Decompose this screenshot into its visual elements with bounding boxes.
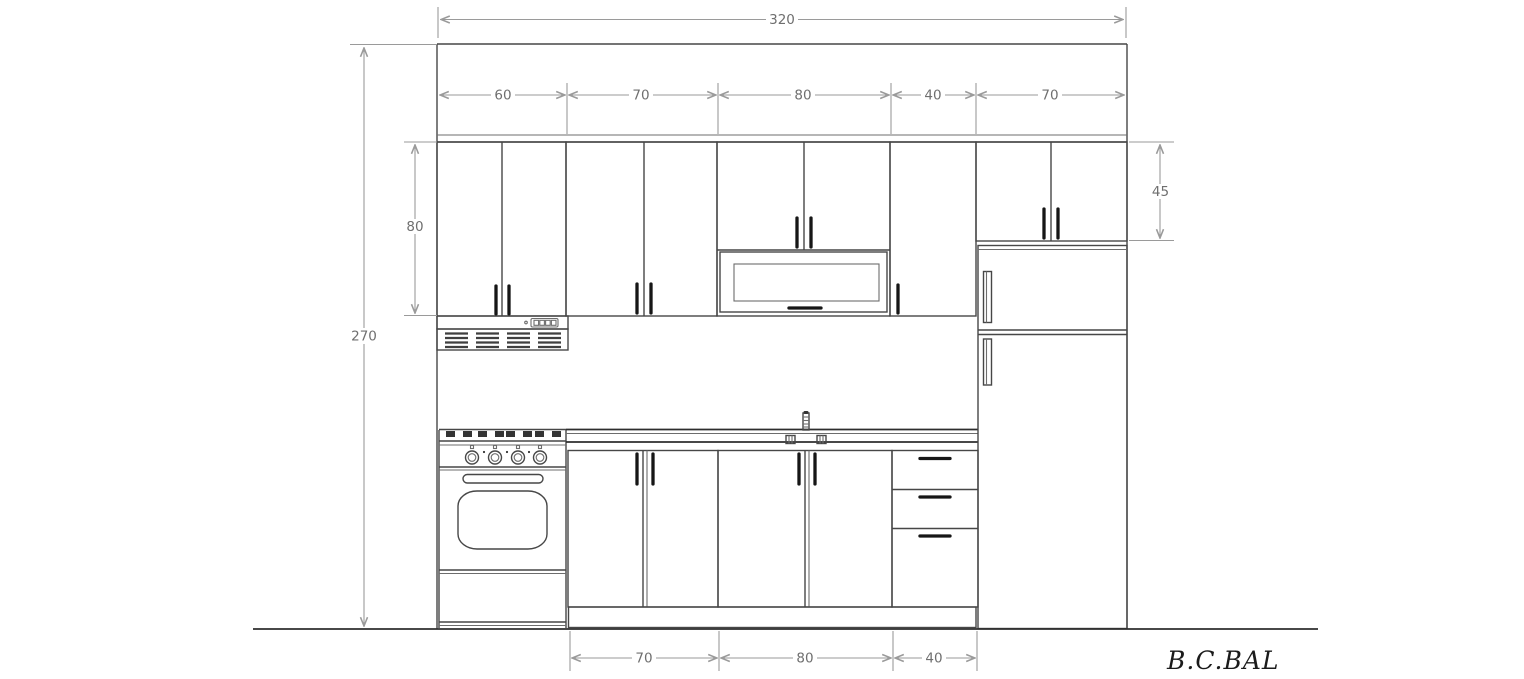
wall-cabinet-above-fridge — [976, 142, 1127, 241]
cooker-drawer — [439, 622, 566, 626]
fridge-handle — [984, 339, 992, 385]
oven-window — [458, 491, 547, 549]
microwave-wall-cabinet-80 — [717, 142, 890, 316]
dim-right-cabinet-height: 45 — [1129, 142, 1174, 241]
hood-display — [525, 319, 558, 328]
sink-base-cabinet-80 — [718, 451, 892, 608]
room-outline — [437, 44, 1127, 629]
control-knobs — [466, 446, 547, 465]
countertop — [566, 430, 978, 443]
dim-label-70: 70 — [632, 88, 649, 104]
kitchen-elevation-drawing: 320 60 70 80 40 70 270 80 — [0, 0, 1524, 679]
range-hood — [437, 316, 568, 350]
dim-total-width: 320 — [438, 7, 1126, 38]
dim-total-height: 270 — [348, 45, 437, 627]
freezer-handle — [984, 272, 992, 323]
refrigerator — [978, 246, 1127, 629]
dim-base-cabinet-widths: 70 80 40 — [570, 631, 977, 671]
cooker — [439, 430, 566, 629]
oven-handle — [463, 475, 543, 484]
dim-label-base-40: 40 — [925, 651, 942, 667]
hood-vents — [445, 334, 561, 348]
dim-label-base-70: 70 — [635, 651, 652, 667]
dim-label-60: 60 — [494, 88, 511, 104]
wall-cabinet-70 — [566, 142, 717, 316]
cooktop-burners — [446, 431, 561, 437]
base-cabinet-70 — [568, 451, 718, 608]
drawing-canvas: 320 60 70 80 40 70 270 80 — [0, 0, 1524, 679]
dim-wall-cabinet-height: 80 — [403, 142, 437, 316]
dim-label-70b: 70 — [1041, 88, 1058, 104]
drawer-unit-40 — [892, 451, 978, 608]
wall-cabinet-60 — [437, 142, 566, 316]
microwave — [720, 252, 887, 312]
faucet — [786, 411, 826, 444]
wall-cabinet-40 — [890, 142, 976, 316]
dim-label-45: 45 — [1152, 184, 1169, 200]
dim-wall-cabinet-widths: 60 70 80 40 70 — [440, 83, 1124, 134]
plinth — [569, 607, 977, 628]
dim-label-80-height: 80 — [406, 219, 423, 235]
signature: B.C.BAL — [1166, 646, 1280, 675]
dim-label-270: 270 — [351, 329, 377, 345]
dim-label-80: 80 — [794, 88, 811, 104]
oven-door — [458, 475, 547, 550]
dim-label-40: 40 — [924, 88, 941, 104]
dim-label-base-80: 80 — [796, 651, 813, 667]
dim-label-320: 320 — [769, 12, 795, 28]
